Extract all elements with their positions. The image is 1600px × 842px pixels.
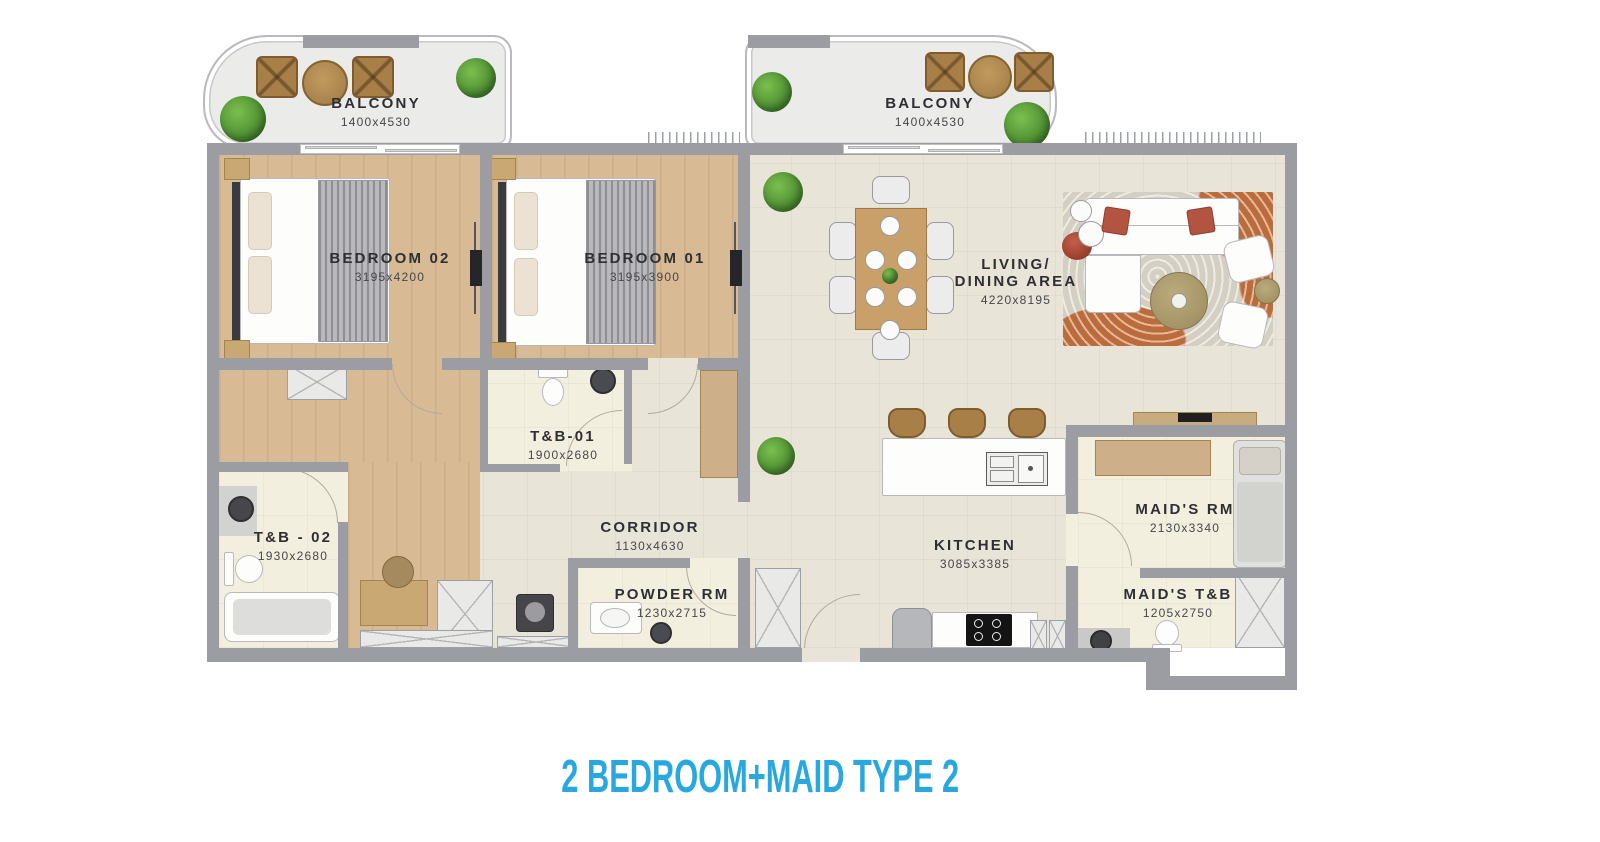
wall-tb01-right bbox=[624, 358, 632, 464]
room-label-kitchen: KITCHEN 3085x3385 bbox=[934, 537, 1016, 571]
cabinet bbox=[497, 636, 575, 648]
washbasin bbox=[228, 496, 254, 522]
side-table-plate bbox=[1070, 200, 1092, 222]
table-centerpiece bbox=[882, 268, 898, 284]
plate bbox=[865, 250, 885, 270]
bed-blanket bbox=[1237, 482, 1283, 562]
plan-title-text: 2 BEDROOM+MAID TYPE 2 bbox=[561, 751, 959, 804]
room-label-tb-02: T&B - 02 1930x2680 bbox=[254, 529, 332, 563]
throw-pillow bbox=[1101, 206, 1131, 236]
room-name: T&B-01 bbox=[528, 428, 598, 445]
coffee-table-decor bbox=[1171, 293, 1187, 309]
washing-machine-drum bbox=[525, 602, 545, 622]
desk bbox=[1095, 440, 1211, 476]
plate bbox=[865, 287, 885, 307]
sink-compartment bbox=[990, 456, 1014, 468]
room-name: CORRIDOR bbox=[600, 519, 699, 536]
door-opening-powder bbox=[690, 558, 738, 568]
balcony-chair bbox=[925, 52, 965, 92]
room-name: KITCHEN bbox=[934, 537, 1016, 554]
door-opening-maids-rm bbox=[1066, 514, 1078, 566]
wall-tb01-left bbox=[480, 370, 488, 472]
room-name: POWDER RM bbox=[615, 586, 730, 603]
dining-chair bbox=[829, 222, 857, 260]
balcony-chair bbox=[256, 56, 298, 98]
wall-below-bedrooms bbox=[442, 358, 648, 370]
plate bbox=[897, 250, 917, 270]
wall-below-bedrooms bbox=[219, 358, 392, 370]
wall-powder-left bbox=[568, 558, 578, 648]
balcony-chair bbox=[1014, 52, 1054, 92]
bar-stool bbox=[888, 408, 926, 438]
room-label-bedroom-01: BEDROOM 01 3195x3900 bbox=[584, 250, 705, 284]
plan-title: 2 BEDROOM+MAID TYPE 2 bbox=[0, 752, 1520, 802]
door-opening-entrance bbox=[802, 648, 860, 662]
window-pane bbox=[385, 149, 457, 152]
toilet-bowl bbox=[542, 378, 564, 406]
throw-pillow bbox=[1186, 206, 1216, 236]
balcony-chair bbox=[352, 56, 394, 98]
wall-below-bedrooms bbox=[698, 358, 750, 370]
shaft-closet bbox=[755, 568, 801, 648]
dining-chair bbox=[926, 276, 954, 314]
wall-corridor-stub bbox=[738, 558, 750, 648]
plate bbox=[897, 287, 917, 307]
bed-headboard bbox=[498, 182, 506, 342]
room-dims: 4220x8195 bbox=[955, 293, 1078, 307]
tv-icon bbox=[1178, 413, 1212, 422]
plant bbox=[757, 437, 795, 475]
sofa-chaise bbox=[1085, 255, 1141, 313]
washbasin bbox=[590, 368, 616, 394]
room-name: MAID'S T&B bbox=[1124, 586, 1233, 603]
balcony-door-window bbox=[300, 144, 460, 154]
shower-stall bbox=[1235, 572, 1285, 648]
room-label-corridor: CORRIDOR 1130x4630 bbox=[600, 519, 699, 553]
bar-stool bbox=[1008, 408, 1046, 438]
room-name: BEDROOM 02 bbox=[329, 250, 450, 267]
side-table-plate bbox=[1078, 221, 1104, 247]
sink-drain bbox=[1028, 466, 1033, 471]
window-pane bbox=[305, 146, 377, 149]
burner bbox=[974, 619, 983, 628]
burner bbox=[974, 632, 983, 641]
pillow bbox=[514, 192, 538, 250]
closet bbox=[360, 630, 493, 648]
wall-bottom-jog bbox=[1146, 648, 1170, 690]
room-dims: 1400x4530 bbox=[885, 115, 975, 129]
wall-tb02-top bbox=[219, 462, 348, 472]
room-label-bedroom-02: BEDROOM 02 3195x4200 bbox=[329, 250, 450, 284]
wall-left bbox=[207, 143, 219, 660]
pillow bbox=[248, 192, 272, 250]
room-label-maids-tb: MAID'S T&B 1205x2750 bbox=[1124, 586, 1233, 620]
wall-bedroom01-living bbox=[738, 155, 750, 502]
balcony-right-wall-stub bbox=[748, 35, 830, 48]
dining-chair bbox=[926, 222, 954, 260]
room-name-line2: DINING AREA bbox=[955, 273, 1078, 290]
window-pane bbox=[928, 149, 1000, 152]
fridge bbox=[892, 608, 932, 652]
nightstand bbox=[224, 158, 250, 180]
burner bbox=[992, 632, 1001, 641]
wall-living-maid bbox=[1066, 425, 1297, 437]
washbasin bbox=[650, 622, 672, 644]
pillow bbox=[248, 256, 272, 314]
room-label-powder-rm: POWDER RM 1230x2715 bbox=[615, 586, 730, 620]
bathtub-basin bbox=[233, 599, 331, 635]
wardrobe bbox=[700, 370, 738, 478]
louver-ticks bbox=[1085, 132, 1261, 143]
room-name: BALCONY bbox=[331, 95, 421, 112]
room-label-balcony-left: BALCONY 1400x4530 bbox=[331, 95, 421, 129]
plate bbox=[880, 216, 900, 236]
room-dims: 1230x2715 bbox=[615, 606, 730, 620]
plant bbox=[752, 72, 792, 112]
wall-tb01-bottom bbox=[480, 464, 560, 472]
stove bbox=[966, 614, 1012, 646]
room-dims: 3195x3900 bbox=[584, 270, 705, 284]
sink-compartment bbox=[990, 470, 1014, 482]
room-name: MAID'S RM bbox=[1135, 501, 1234, 518]
plate bbox=[880, 320, 900, 340]
toilet-tank bbox=[224, 552, 234, 586]
room-dims: 1930x2680 bbox=[254, 549, 332, 563]
wall-maidrm-maidtb bbox=[1140, 568, 1297, 578]
room-dims: 3085x3385 bbox=[934, 557, 1016, 571]
room-dims: 1900x2680 bbox=[528, 448, 598, 462]
room-label-balcony-right: BALCONY 1400x4530 bbox=[885, 95, 975, 129]
balcony-door-window bbox=[843, 144, 1003, 154]
pillow bbox=[514, 258, 538, 316]
room-dims: 1130x4630 bbox=[600, 539, 699, 553]
plant bbox=[456, 58, 496, 98]
room-name: BALCONY bbox=[885, 95, 975, 112]
plant bbox=[763, 172, 803, 212]
room-label-tb-01: T&B-01 1900x2680 bbox=[528, 428, 598, 462]
balcony-table bbox=[968, 55, 1012, 99]
toilet-bowl bbox=[1155, 620, 1179, 646]
dining-chair bbox=[872, 176, 910, 204]
window-pane bbox=[848, 146, 920, 149]
burner bbox=[992, 619, 1001, 628]
bed-headboard bbox=[232, 182, 240, 340]
room-name: BEDROOM 01 bbox=[584, 250, 705, 267]
door-opening-tb02 bbox=[338, 472, 348, 522]
room-label-living-dining: LIVING/ DINING AREA 4220x8195 bbox=[955, 256, 1078, 307]
plant bbox=[1004, 102, 1050, 148]
tv-icon bbox=[470, 250, 482, 286]
wall-bottom bbox=[207, 648, 1170, 662]
room-dims: 2130x3340 bbox=[1135, 521, 1234, 535]
room-name: T&B - 02 bbox=[254, 529, 332, 546]
tv-icon bbox=[730, 250, 742, 286]
room-label-maids-rm: MAID'S RM 2130x3340 bbox=[1135, 501, 1234, 535]
room-name-line1: LIVING/ bbox=[955, 256, 1078, 273]
louver-ticks bbox=[648, 132, 740, 143]
stool bbox=[382, 556, 414, 588]
dining-chair bbox=[829, 276, 857, 314]
room-dims: 3195x4200 bbox=[329, 270, 450, 284]
bar-stool bbox=[948, 408, 986, 438]
floor-plan-page: BALCONY 1400x4530 BALCONY 1400x4530 BEDR… bbox=[0, 0, 1600, 842]
balcony-left-wall-stub bbox=[303, 35, 419, 48]
wall-right bbox=[1285, 143, 1297, 690]
room-dims: 1205x2750 bbox=[1124, 606, 1233, 620]
room-dims: 1400x4530 bbox=[331, 115, 421, 129]
plant bbox=[220, 96, 266, 142]
pillow bbox=[1239, 447, 1281, 475]
nightstand bbox=[490, 158, 516, 180]
side-table bbox=[1254, 278, 1280, 304]
